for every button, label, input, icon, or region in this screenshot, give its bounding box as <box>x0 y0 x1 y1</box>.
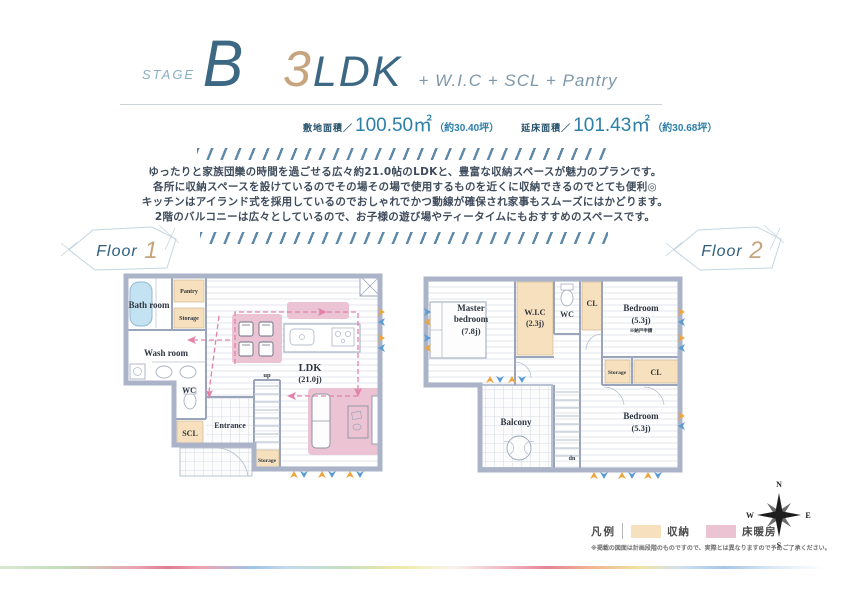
legend-storage-swatch <box>631 525 661 538</box>
legend-storage-label: 収納 <box>667 524 690 539</box>
wc-label: WC <box>560 310 574 319</box>
master-label-1: Master <box>457 303 484 313</box>
legend-divider <box>622 523 623 539</box>
cl-mid-label: CL <box>650 368 661 377</box>
description-line: キッチンはアイランド式を採用しているのでおしゃれでかつ動線が確保され家事もスムー… <box>125 195 685 210</box>
site-area-label: 敷地面積／ <box>303 121 353 134</box>
floor1-badge-label: Floor <box>96 243 137 260</box>
entrance-label: Entrance <box>214 421 246 430</box>
site-area-value: 100.50㎡ <box>355 110 432 137</box>
toilet <box>561 290 573 306</box>
legend-title: 凡例 <box>591 524 616 539</box>
wic-label: W.I.C <box>524 307 545 317</box>
description-line: 各所に収納スペースを設けているのでその場その場で使用するものを近くに収納できるの… <box>125 180 685 195</box>
master-label-2: bedroom <box>454 314 489 324</box>
bedroom1-label: Bedroom <box>623 303 659 313</box>
sink <box>156 366 172 378</box>
airflow-arrow <box>290 471 308 478</box>
ldk-size-label: (21.0j) <box>298 374 322 384</box>
airflow-arrow <box>618 472 636 479</box>
compass-w: W <box>746 511 754 520</box>
plan-title: 3 LDK + W.I.C + SCL + Pantry <box>283 44 618 94</box>
compass-rose: N E S W <box>744 478 814 550</box>
legend: 凡例 収納 床暖房 <box>591 523 777 539</box>
area-figures: 敷地面積／ 100.50㎡ （約30.40坪） 延床面積／ 101.43㎡ （約… <box>303 110 717 137</box>
description-line: ゆったりと家族団欒の時間を過ごせる広々約21.0帖のLDKと、豊富な収納スペース… <box>125 165 685 180</box>
sink <box>180 366 196 378</box>
cl-top-label: CL <box>586 299 597 308</box>
floor-area-tsubo: （約30.68坪） <box>652 119 717 134</box>
floor-heating-kitchen <box>287 302 349 319</box>
legend-heating-swatch <box>706 525 736 538</box>
floor-area-value: 101.43㎡ <box>573 110 650 137</box>
up-label: up <box>263 372 271 379</box>
header-divider <box>120 104 662 105</box>
site-area: 敷地面積／ 100.50㎡ （約30.40坪） <box>303 110 499 137</box>
storage-stairs-label: Storage <box>258 458 277 464</box>
bedroom1-note: ※納戸申請 <box>630 327 653 334</box>
scl-label: SCL <box>182 429 198 438</box>
hatch-divider-top <box>197 148 607 160</box>
storage-label: Storage <box>608 370 627 376</box>
porch <box>180 448 252 476</box>
balcony-label: Balcony <box>500 417 532 427</box>
plan-description: ゆったりと家族団欒の時間を過ごせる広々約21.0帖のLDKと、豊富な収納スペース… <box>125 165 685 225</box>
airflow-arrow <box>590 472 608 479</box>
floor2-badge: Floor 2 <box>660 222 795 277</box>
bedroom2-size-label: (5.3j) <box>631 423 650 433</box>
disclaimer-note: ※掲載の図面は計画段階のものですので、実際とは異なりますので予めご了承ください。 <box>591 543 836 552</box>
stage-title: STAGE B <box>142 30 245 96</box>
floor-area-label: 延床面積／ <box>521 121 571 134</box>
rainbow-footer-line <box>0 566 842 569</box>
tv-board <box>372 396 378 444</box>
floor1-plan: Bath room Pantry Storage Wash room WC SC… <box>122 272 394 480</box>
master-size-label: (7.8j) <box>461 326 480 336</box>
description-line: 2階のバルコニーは広々としているので、お子様の遊び場やティータイムにもおすすめの… <box>125 210 685 225</box>
site-area-tsubo: （約30.40坪） <box>434 119 499 134</box>
storage-top-label: Storage <box>179 316 199 322</box>
compass-n: N <box>776 480 782 489</box>
bedroom1-size-label: (5.3j) <box>631 315 650 325</box>
plan-extras: + W.I.C + SCL + Pantry <box>418 71 617 91</box>
floor-area: 延床面積／ 101.43㎡ （約30.68坪） <box>521 110 717 137</box>
wc-label: WC <box>182 386 196 395</box>
airflow-arrow <box>346 471 364 478</box>
ldk-label: LDK <box>299 363 323 374</box>
compass-e: E <box>805 511 810 520</box>
plan-number: 3 <box>283 44 311 94</box>
bath-label: Bath room <box>128 300 170 310</box>
airflow-arrow <box>644 472 662 479</box>
hatch-divider-bottom <box>200 232 608 244</box>
floor1-badge-number: 1 <box>144 237 157 264</box>
wash-label: Wash room <box>144 348 189 358</box>
floor2-badge-label: Floor <box>701 243 742 260</box>
washer <box>130 364 145 379</box>
airflow-arrow <box>318 471 336 478</box>
floor2-plan: Master bedroom (7.8j) W.I.C (2.3j) WC CL… <box>422 272 694 480</box>
dn-label: dn <box>569 456 576 462</box>
toilet <box>184 393 196 409</box>
pantry-label: Pantry <box>180 289 198 295</box>
balcony-table <box>507 436 531 460</box>
stage-letter: B <box>203 30 244 96</box>
wic-size-label: (2.3j) <box>526 319 544 328</box>
legend-heating-label: 床暖房 <box>742 524 777 539</box>
bedroom2-label: Bedroom <box>623 411 659 421</box>
floor1-badge: Floor 1 <box>55 222 190 277</box>
flyer-page: STAGE B 3 LDK + W.I.C + SCL + Pantry 敷地面… <box>0 0 842 595</box>
floor2-badge-number: 2 <box>748 237 762 264</box>
plan-ldk: LDK <box>313 51 403 94</box>
stage-label: STAGE <box>142 67 195 82</box>
